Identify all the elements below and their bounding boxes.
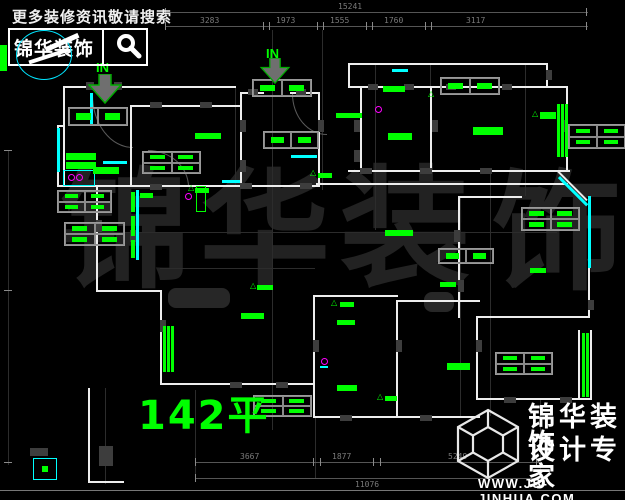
electrical-symbol (321, 358, 328, 365)
cad-label (178, 166, 193, 170)
annotation-cell (98, 108, 127, 125)
cad-label (385, 230, 413, 236)
wall-segment (160, 290, 162, 385)
furniture (424, 292, 454, 312)
cad-label (388, 133, 412, 140)
entrance-in-label: IN (266, 46, 279, 61)
wall-post (588, 300, 594, 310)
wall-post (30, 448, 48, 456)
wall-post (420, 415, 432, 421)
dimension-tick (195, 474, 196, 482)
wall-post (360, 168, 372, 174)
annotation-cell (551, 219, 580, 230)
cad-label (604, 140, 618, 144)
cad-label (337, 385, 357, 391)
wall-segment (313, 295, 315, 418)
annotation-cell (466, 249, 493, 263)
wall-segment (458, 196, 522, 198)
cad-label (447, 363, 470, 370)
annotation-cell (65, 234, 95, 245)
cad-label (102, 226, 117, 230)
annotation-cell (95, 234, 125, 245)
annotation-cell (569, 125, 597, 137)
dim-total-bottom: 11076 (355, 480, 379, 489)
annotation-table (440, 77, 500, 95)
annotation-table (57, 190, 112, 213)
cube-wireframe-icon (452, 406, 524, 482)
dimension-tick (4, 290, 12, 291)
wall-post (150, 102, 162, 108)
floorplan-canvas: 锦 华 装 饰 更多装修资讯敬请搜索 锦华装饰 IN IN △ △ △ △ △ (0, 0, 625, 500)
cad-label (167, 326, 170, 372)
cad-label (76, 113, 91, 120)
banner-divider (102, 30, 104, 64)
elevation-marker: △ (188, 184, 194, 192)
annotation-cell (524, 353, 552, 364)
cad-label (66, 162, 96, 169)
wall-segment (476, 398, 592, 400)
wall-segment (348, 170, 570, 172)
elevation-marker: △ (377, 393, 383, 401)
cad-label (65, 205, 78, 209)
dimension-tick (313, 458, 314, 466)
cad-label (604, 129, 618, 133)
extension-line (105, 388, 106, 484)
dimension-tick (323, 22, 324, 30)
annotation-cell (524, 364, 552, 375)
annotation-cell (172, 163, 201, 174)
cad-label (530, 268, 546, 273)
annotation-cell (85, 191, 112, 202)
cad-label (66, 153, 96, 160)
cad-label (140, 193, 153, 198)
wall-post (200, 102, 212, 108)
cad-label (576, 140, 590, 144)
cad-label (446, 253, 460, 258)
furniture (168, 288, 230, 308)
wall-segment (348, 63, 548, 65)
cad-label (383, 86, 405, 92)
annotation-cell (496, 364, 524, 375)
wall-post (354, 120, 360, 132)
elevation-marker: △ (331, 299, 337, 307)
dimension-tick (195, 458, 196, 466)
cad-label (473, 253, 487, 258)
elevation-marker: △ (532, 110, 538, 118)
elevation-marker: △ (310, 169, 316, 177)
magnifier-icon (108, 32, 148, 60)
annotation-cell (551, 208, 580, 219)
dimension-tick (431, 22, 432, 30)
extension-line (315, 418, 316, 478)
cad-label (150, 155, 165, 159)
cad-label (529, 211, 544, 215)
down-arrow-icon (258, 58, 292, 84)
annotation-table (64, 222, 125, 246)
window (57, 128, 60, 172)
dimension-tick (269, 22, 270, 30)
annotation-cell (58, 191, 85, 202)
cad-label (473, 127, 503, 135)
dimension-tick (586, 22, 587, 30)
annotation-cell (264, 132, 291, 148)
cad-label (289, 399, 304, 403)
window (222, 180, 240, 183)
extension-line (460, 196, 461, 416)
extension-line (8, 150, 9, 465)
wall-post (313, 340, 319, 352)
wall-segment (396, 300, 480, 302)
cad-label (557, 222, 572, 226)
dimension-tick (586, 8, 587, 16)
annotation-cell (496, 353, 524, 364)
cad-label (503, 356, 517, 360)
dim-segment: 1877 (332, 452, 351, 461)
window (103, 161, 127, 164)
wall-post (504, 397, 516, 403)
cad-label (131, 192, 135, 212)
window (320, 366, 328, 368)
dimension-tick (425, 22, 426, 30)
cad-label (531, 367, 545, 371)
cad-label (271, 137, 285, 143)
cad-label (260, 85, 275, 91)
annotation-cell (569, 137, 597, 149)
wall-post (420, 168, 432, 174)
wall-segment (96, 290, 162, 292)
cad-label (298, 137, 312, 143)
cad-label (131, 216, 135, 236)
cad-label (93, 167, 119, 174)
wall-post (396, 340, 402, 352)
annotation-cell (85, 202, 112, 213)
cad-label (440, 282, 456, 287)
wall-segment (476, 316, 478, 400)
annotation-cell (69, 108, 98, 125)
wall-post (354, 150, 360, 162)
wall-segment (588, 268, 590, 318)
wall-segment (313, 295, 398, 297)
cad-label (540, 112, 556, 119)
annotation-cell (439, 249, 466, 263)
extension-line (160, 268, 315, 269)
wall-segment (130, 105, 132, 187)
dimension-tick (320, 458, 321, 466)
annotation-table (521, 207, 580, 231)
cad-label (289, 85, 304, 91)
annotation-table (68, 107, 128, 126)
dim-segment: 1760 (384, 16, 403, 25)
annotation-cell (291, 132, 318, 148)
wall-post (276, 382, 288, 388)
cad-label (337, 320, 355, 325)
electrical-symbol (185, 193, 192, 200)
annotation-cell (597, 137, 625, 149)
annotation-cell (522, 208, 551, 219)
down-arrow-icon (88, 74, 122, 104)
cad-label (42, 466, 48, 472)
cad-label (163, 326, 166, 372)
dimension-tick (263, 22, 264, 30)
wall-segment (360, 88, 362, 172)
wall-post (546, 70, 552, 80)
wall-segment (116, 86, 236, 88)
wall-segment (88, 388, 90, 483)
wall-post (240, 183, 252, 189)
electrical-symbol (375, 106, 382, 113)
cad-label (557, 104, 560, 157)
wall-post (300, 183, 312, 189)
dimension-tick (372, 22, 373, 30)
watermark-char: 饰 (492, 170, 622, 300)
cad-label (448, 83, 463, 89)
wall-post (368, 84, 378, 90)
annotation-cell (283, 396, 312, 406)
wall-segment (476, 316, 590, 318)
promo-search-text: 更多装修资讯敬请搜索 (12, 6, 172, 27)
annotation-cell (597, 125, 625, 137)
annotation-table (495, 352, 553, 375)
cad-label (65, 194, 78, 198)
wall-segment (240, 92, 242, 187)
dim-total-top: 15241 (338, 2, 362, 11)
extension-line (525, 63, 526, 196)
extension-line (490, 170, 491, 416)
annotation-cell (441, 78, 470, 94)
wall-post (502, 84, 512, 90)
dimension-tick (366, 22, 367, 30)
wall-post (150, 184, 162, 190)
cad-label (171, 326, 174, 372)
cad-label (72, 226, 87, 230)
cad-label (257, 285, 273, 290)
cad-label (195, 133, 221, 139)
wall-post (432, 120, 438, 132)
annotation-cell (95, 223, 125, 234)
elevation-marker: △ (428, 90, 434, 98)
cad-label (529, 222, 544, 226)
cad-label (131, 240, 135, 258)
cad-label (557, 211, 572, 215)
wall-segment (316, 183, 568, 185)
cad-label (340, 302, 354, 307)
cad-label (531, 356, 545, 360)
cad-label (336, 113, 362, 118)
wall-post (240, 160, 246, 172)
window (392, 69, 408, 72)
extension-line (235, 86, 236, 186)
annotation-table (438, 248, 494, 264)
cad-label (91, 194, 104, 198)
cad-label (178, 155, 193, 159)
cad-label (105, 113, 120, 120)
annotation-cell (143, 152, 172, 163)
cad-label (586, 333, 589, 397)
annotation-cell (283, 406, 312, 416)
dimension-line (165, 12, 588, 13)
window (588, 196, 591, 268)
total-area-label: 142平 (138, 383, 270, 441)
window (136, 190, 139, 260)
annotation-cell (58, 202, 85, 213)
cad-label (385, 396, 397, 401)
window (291, 155, 317, 158)
dim-segment: 1973 (276, 16, 295, 25)
cad-label (91, 205, 104, 209)
dim-segment: 3283 (200, 16, 219, 25)
dimension-tick (4, 462, 12, 463)
annotation-table (568, 124, 625, 149)
wall-segment (590, 330, 592, 400)
electrical-symbol (76, 174, 83, 181)
annotation-cell (470, 78, 499, 94)
annotation-table (263, 131, 319, 149)
wall-post (99, 446, 113, 466)
wall-segment (546, 86, 568, 88)
cad-label (576, 129, 590, 133)
annotation-table (142, 151, 201, 174)
cad-label (289, 409, 304, 413)
cad-label (582, 333, 585, 397)
wall-post (458, 280, 464, 292)
cad-label (72, 237, 87, 241)
dimension-line (165, 26, 588, 27)
door-symbol (196, 186, 206, 212)
cad-label (561, 104, 564, 157)
extension-line (97, 232, 557, 233)
wall-post (480, 168, 492, 174)
cad-label (150, 166, 165, 170)
dim-segment: 3667 (240, 452, 259, 461)
annotation-cell (143, 163, 172, 174)
wall-post (404, 84, 414, 90)
cad-label (503, 367, 517, 371)
cad-label (241, 313, 264, 319)
cad-label (318, 173, 332, 178)
wall-segment (348, 63, 350, 88)
wall-segment (88, 481, 124, 483)
annotation-cell (172, 152, 201, 163)
annotation-cell (65, 223, 95, 234)
wall-segment (578, 330, 580, 400)
cad-label (477, 83, 492, 89)
dimension-tick (373, 458, 374, 466)
annotation-cell (522, 219, 551, 230)
wall-post (476, 340, 482, 352)
dim-segment: 1555 (330, 16, 349, 25)
dimension-tick (380, 458, 381, 466)
wall-post (340, 415, 352, 421)
wall-post (240, 120, 246, 132)
electrical-symbol (68, 174, 75, 181)
footer-website: WWW.JS-JINHUA.COM (478, 476, 625, 500)
wall-post (454, 230, 460, 242)
cad-label (0, 45, 7, 71)
elevation-marker: △ (250, 282, 256, 290)
dimension-tick (4, 150, 12, 151)
dim-segment: 3117 (466, 16, 485, 25)
dimension-tick (317, 22, 318, 30)
wall-segment (130, 105, 242, 107)
cad-label (102, 237, 117, 241)
